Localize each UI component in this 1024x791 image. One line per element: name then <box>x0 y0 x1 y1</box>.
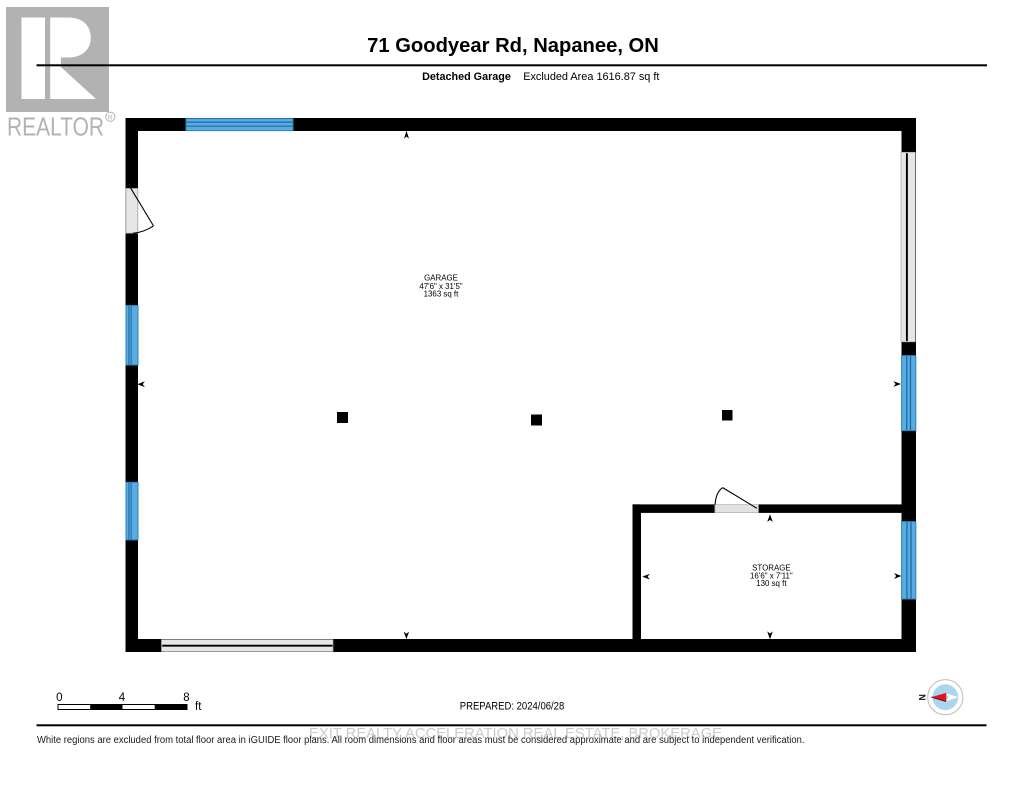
svg-text:71 Goodyear Rd, Napanee, ON: 71 Goodyear Rd, Napanee, ON <box>367 35 659 57</box>
svg-text:Excluded Area 1616.87 sq ft: Excluded Area 1616.87 sq ft <box>523 71 659 83</box>
svg-text:GARAGE: GARAGE <box>424 273 458 282</box>
svg-text:REALTOR: REALTOR <box>7 112 104 142</box>
svg-text:N: N <box>918 694 928 700</box>
svg-text:8: 8 <box>183 692 189 704</box>
svg-text:1363 sq ft: 1363 sq ft <box>424 290 459 299</box>
svg-text:R: R <box>108 114 113 121</box>
svg-text:White regions are excluded fro: White regions are excluded from total fl… <box>37 735 805 746</box>
svg-text:0: 0 <box>56 692 62 704</box>
svg-text:130 sq ft: 130 sq ft <box>756 579 787 588</box>
svg-text:PREPARED: 2024/06/28: PREPARED: 2024/06/28 <box>460 700 565 712</box>
svg-text:Detached Garage: Detached Garage <box>422 71 511 83</box>
svg-text:ft: ft <box>195 701 202 713</box>
svg-text:4: 4 <box>119 692 126 704</box>
